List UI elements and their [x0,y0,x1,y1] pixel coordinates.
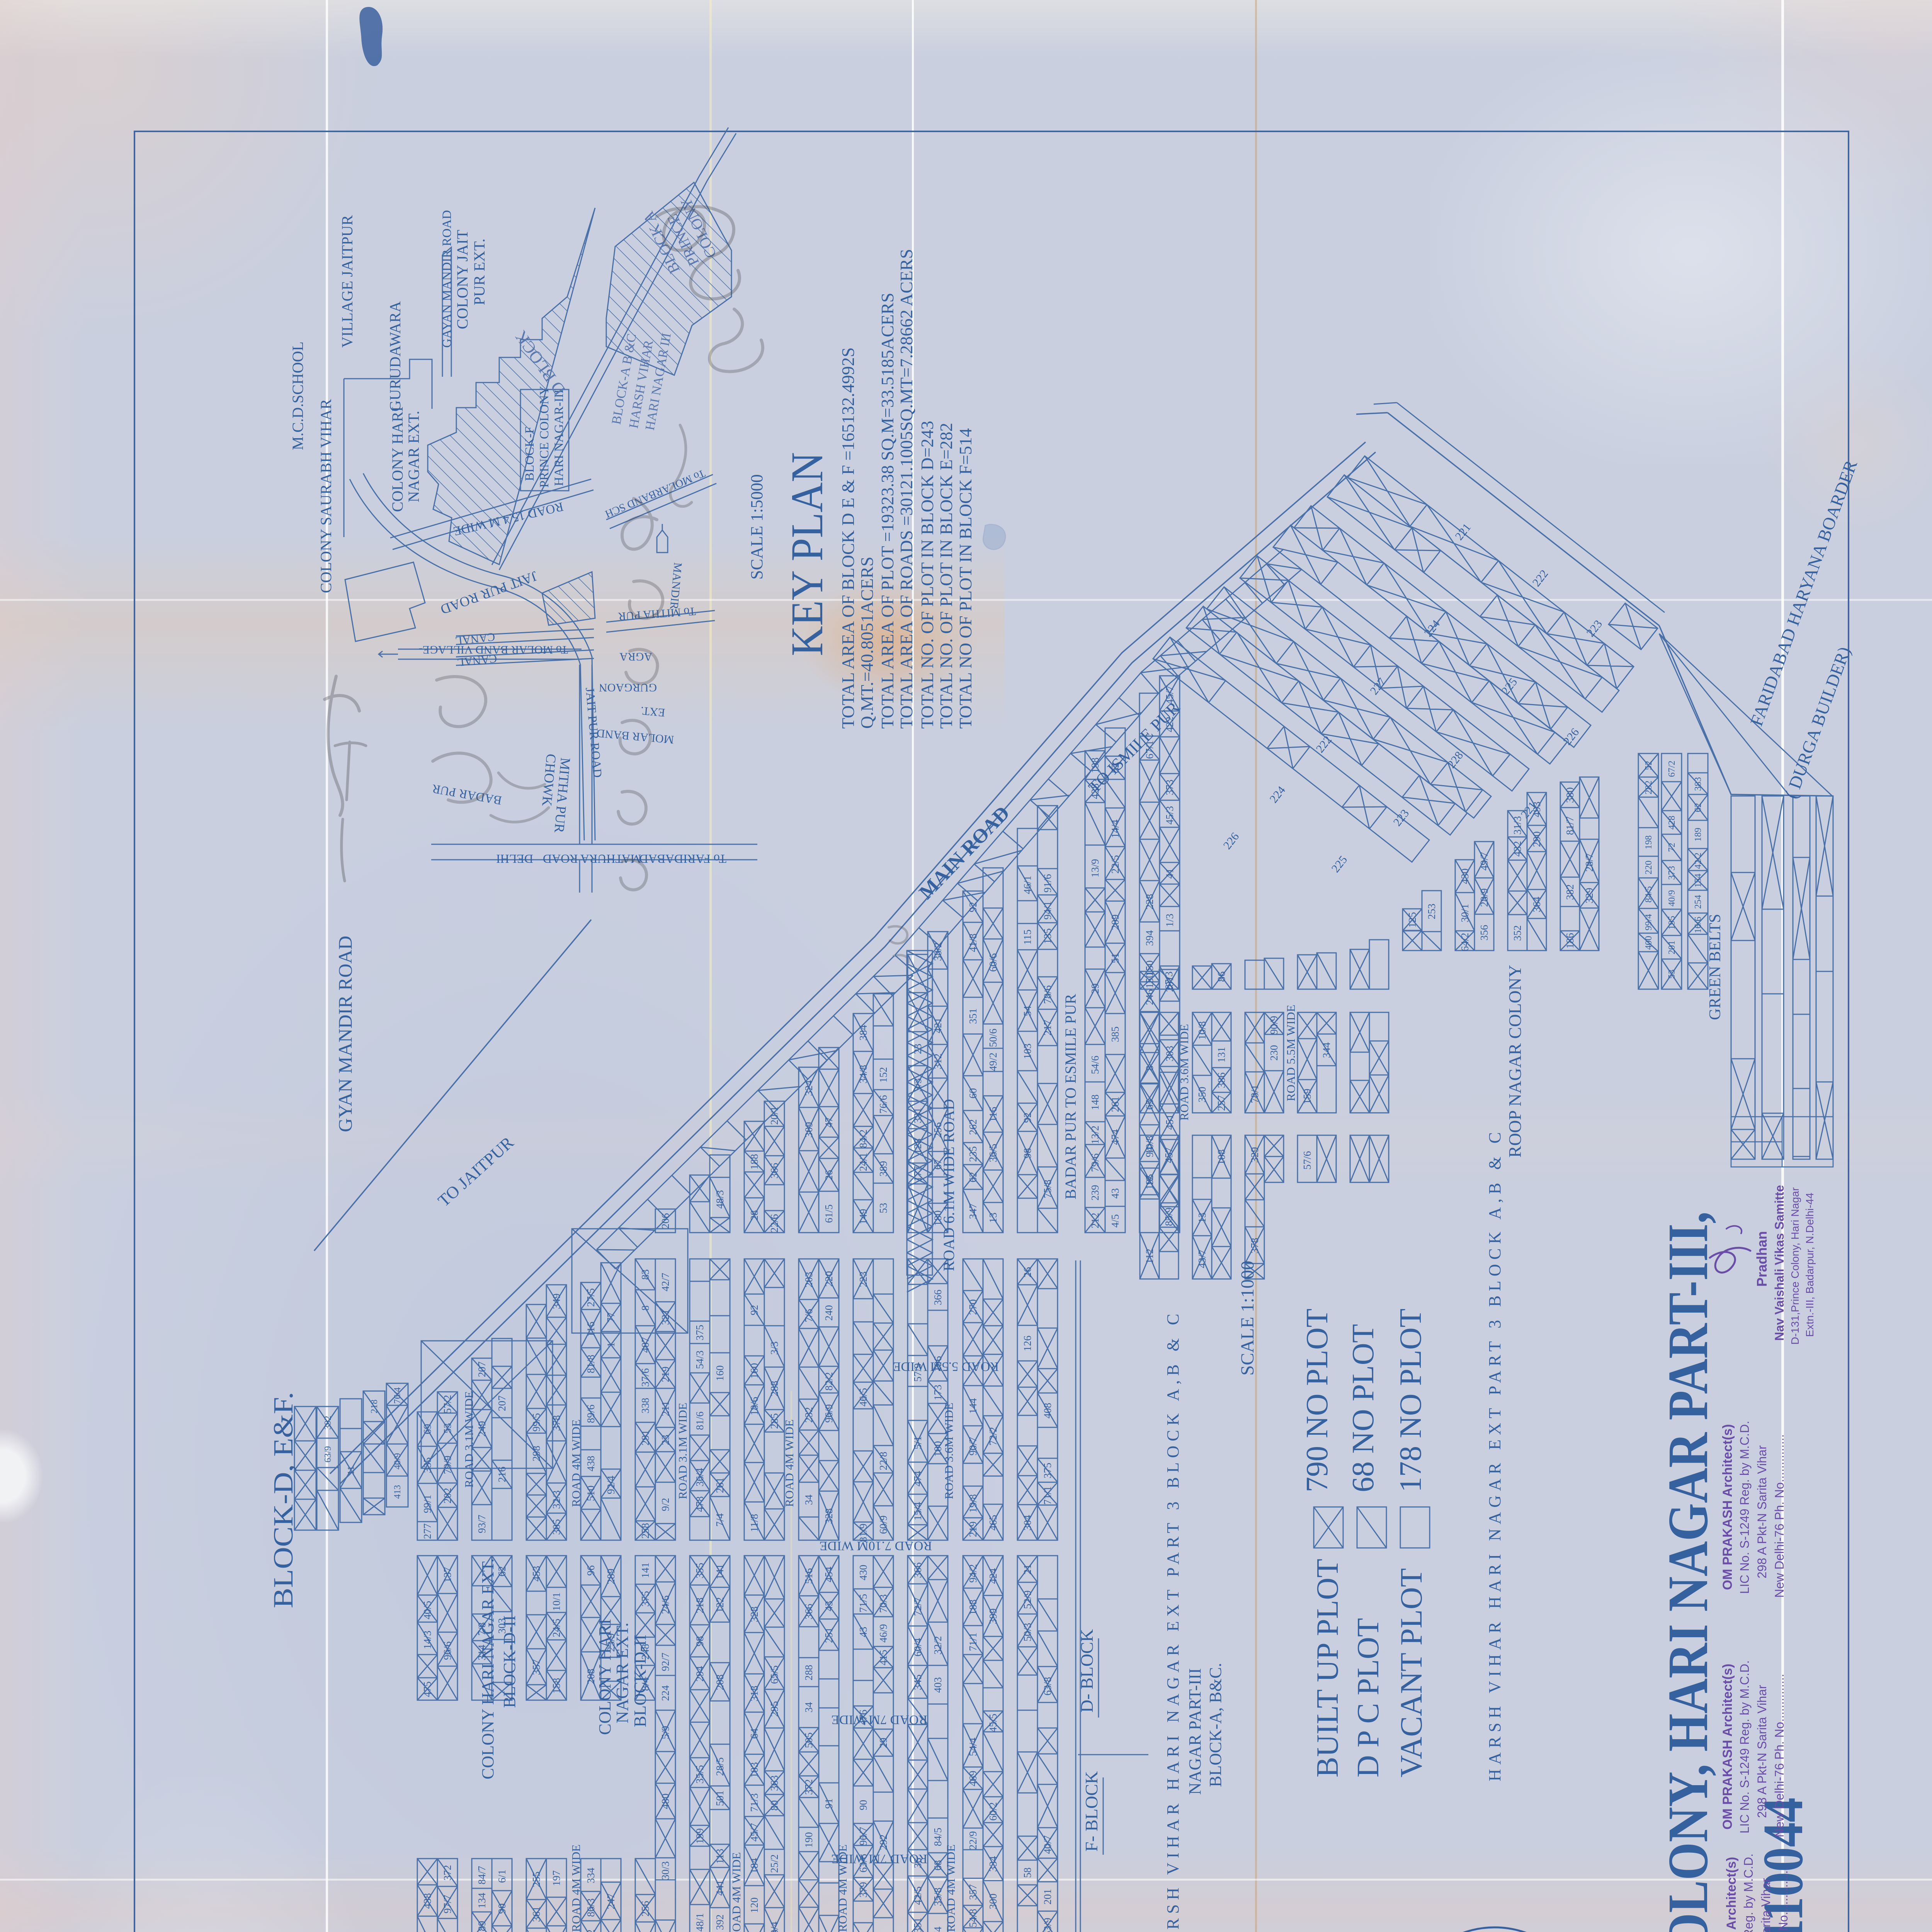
svg-text:288: 288 [769,1381,780,1397]
svg-text:43: 43 [1109,1188,1121,1199]
svg-text:13: 13 [987,1213,999,1223]
svg-text:298 A Pkt-N Sarita Vihar: 298 A Pkt-N Sarita Vihar [1759,1878,1773,1932]
svg-text:36/4: 36/4 [694,1468,706,1486]
svg-text:304: 304 [1022,1515,1033,1531]
svg-text:ROAD 5.5M WIDE: ROAD 5.5M WIDE [1284,1005,1298,1101]
svg-text:113: 113 [714,1849,726,1864]
svg-text:84/5: 84/5 [932,1828,944,1846]
svg-text:PRINCE COLONY: PRINCE COLONY [537,386,551,488]
svg-text:53: 53 [442,1423,453,1434]
svg-text:GREEN BELTS: GREEN BELTS [1706,914,1724,1020]
svg-text:99/4: 99/4 [1644,914,1654,930]
svg-text:OM PRAKASH Architect(s): OM PRAKASH Architect(s) [1720,1664,1735,1830]
svg-text:227: 227 [1368,676,1389,697]
svg-text:COLONY SAURABH VIHAR: COLONY SAURABH VIHAR [317,399,335,593]
svg-text:MAIN ROAD: MAIN ROAD [915,802,1014,903]
svg-text:19/8: 19/8 [967,1494,979,1513]
svg-text:To MOLAR BAND VILLAGE-: To MOLAR BAND VILLAGE- [419,643,568,656]
svg-text:TO JAITPUR: TO JAITPUR [434,1133,517,1211]
svg-text:363: 363 [769,1776,780,1791]
svg-text:451: 451 [1164,1114,1175,1130]
svg-text:295: 295 [769,1701,780,1717]
svg-text:261: 261 [714,1478,726,1493]
svg-text:207: 207 [496,1396,508,1412]
svg-text:372: 372 [442,1865,453,1881]
svg-text:28/7: 28/7 [1583,853,1595,872]
svg-text:334: 334 [585,1867,597,1883]
svg-text:14/3: 14/3 [422,1631,433,1649]
svg-text:135: 135 [1042,929,1053,944]
svg-text:43: 43 [823,1601,835,1611]
svg-text:255: 255 [531,1872,542,1888]
svg-text:430: 430 [1459,869,1471,884]
svg-text:224: 224 [1422,618,1443,639]
svg-text:220: 220 [823,1271,835,1287]
svg-text:23: 23 [912,1044,923,1054]
svg-text:256: 256 [639,1901,651,1917]
svg-text:96: 96 [585,1565,597,1576]
svg-text:160: 160 [748,1363,760,1379]
svg-text:5/1: 5/1 [912,1436,923,1449]
svg-text:115: 115 [1022,930,1033,945]
svg-text:BLOCK-D-II: BLOCK-D-II [631,1634,650,1727]
svg-text:394: 394 [1144,930,1155,946]
svg-text:188: 188 [748,1154,760,1170]
svg-text:1/3: 1/3 [1164,913,1175,927]
svg-text:291: 291 [639,1430,651,1446]
svg-text:81/8: 81/8 [585,1355,597,1373]
svg-text:41: 41 [1164,868,1175,879]
svg-text:392: 392 [714,1915,726,1930]
svg-text:516: 516 [803,1568,815,1584]
svg-text:154: 154 [1693,874,1703,888]
svg-text:226: 226 [1561,726,1582,748]
svg-text:OM PRAKASH Architect(s): OM PRAKASH Architect(s) [1724,1857,1739,1932]
svg-text:SCALE 1:1000: SCALE 1:1000 [1237,1261,1258,1376]
svg-text:28/9: 28/9 [1478,888,1490,907]
svg-text:352: 352 [1512,925,1523,941]
svg-text:7/4: 7/4 [714,1513,726,1527]
svg-text:24/6: 24/6 [660,1595,671,1614]
svg-text:474: 474 [1109,1129,1121,1145]
svg-text:290: 290 [1531,832,1543,847]
svg-text:383: 383 [1693,777,1703,791]
svg-text:20/1: 20/1 [769,1106,780,1125]
svg-text:PUR EXT.: PUR EXT. [471,238,488,305]
svg-text:92: 92 [1022,1112,1033,1123]
svg-text:89: 89 [476,1921,488,1931]
svg-text:294: 294 [694,1666,706,1682]
svg-text:HARI NAGAR-III: HARI NAGAR-III [552,389,566,486]
svg-text:305: 305 [551,1519,562,1535]
svg-text:202: 202 [442,1488,453,1504]
svg-text:312: 312 [932,1054,944,1070]
svg-text:23: 23 [660,1435,671,1445]
svg-text:13/9: 13/9 [1089,859,1101,878]
svg-text:334: 334 [987,1856,999,1872]
svg-text:18/6: 18/6 [748,1397,760,1415]
svg-text:28/5: 28/5 [714,1757,726,1776]
svg-text:To FARIDABAD: To FARIDABAD [639,852,726,866]
svg-text:285: 285 [769,1413,780,1429]
svg-text:261: 261 [1109,1097,1121,1112]
svg-text:TOTAL NO. OF PLOT IN BLOCK D=2: TOTAL NO. OF PLOT IN BLOCK D=243 [917,421,937,729]
svg-text:36/5: 36/5 [987,1144,999,1162]
svg-text:21: 21 [1022,1564,1033,1575]
svg-text:103: 103 [1022,1044,1033,1060]
svg-text:11: 11 [346,1466,356,1475]
svg-text:375: 375 [639,1591,651,1607]
svg-text:224: 224 [660,1685,671,1701]
svg-text:351: 351 [912,1918,923,1932]
svg-text:321: 321 [660,1310,671,1325]
svg-text:92/4: 92/4 [605,1475,617,1494]
svg-text:40/9: 40/9 [1667,890,1677,906]
svg-text:96/7: 96/7 [857,1827,869,1845]
svg-text:253: 253 [1426,904,1437,920]
svg-text:8: 8 [639,1306,651,1311]
svg-text:NAGAR EXT.: NAGAR EXT. [613,1622,632,1723]
svg-text:6/1: 6/1 [496,1869,508,1883]
svg-text:84/5: 84/5 [1644,886,1654,903]
svg-text:309: 309 [803,1122,815,1138]
svg-text:400: 400 [1644,936,1654,950]
svg-text:29: 29 [1089,983,1101,994]
svg-text:COLONY HARI: COLONY HARI [595,1619,614,1735]
svg-text:57/2: 57/2 [442,1395,453,1413]
svg-text:206: 206 [660,1213,671,1229]
svg-text:344: 344 [1321,1042,1332,1058]
svg-text:31/3: 31/3 [1512,816,1523,835]
svg-text:149: 149 [857,1209,869,1225]
svg-text:407: 407 [639,1337,651,1353]
svg-text:( DURGA BUILDER): ( DURGA BUILDER) [1781,644,1854,801]
svg-text:14/4: 14/4 [1109,819,1121,838]
svg-text:465: 465 [987,1515,999,1531]
svg-text:230: 230 [1268,1045,1280,1061]
svg-text:226: 226 [1221,830,1242,852]
svg-text:13: 13 [1196,1213,1208,1223]
svg-text:216: 216 [496,1467,508,1483]
svg-text:96/9: 96/9 [823,1404,835,1423]
svg-text:247: 247 [605,1894,617,1910]
svg-text:178 NO PLOT: 178 NO PLOT [1394,1308,1428,1492]
svg-text:37/6: 37/6 [639,1368,651,1387]
svg-text:62: 62 [967,1172,979,1182]
svg-text:375: 375 [1042,1463,1053,1479]
svg-text:50/6: 50/6 [987,1029,999,1047]
svg-text:177: 177 [912,1166,923,1182]
svg-text:98: 98 [1022,1148,1033,1158]
svg-text:257: 257 [1216,1095,1227,1111]
svg-text:JAIT PUR ROAD: JAIT PUR ROAD [439,568,539,617]
svg-text:SCALE 1:5000: SCALE 1:5000 [747,474,766,580]
svg-text:Q.MT.=40.8051ACERS: Q.MT.=40.8051ACERS [857,556,877,729]
svg-text:208: 208 [714,1675,726,1690]
svg-text:86/3: 86/3 [585,1898,597,1917]
svg-text:76/4: 76/4 [393,1387,403,1404]
svg-text:469: 469 [967,1771,979,1787]
svg-text:60/6: 60/6 [987,953,999,972]
svg-text:432: 432 [1512,841,1523,857]
svg-text:30/1: 30/1 [1459,904,1471,922]
svg-text:50/3: 50/3 [1022,1623,1033,1641]
svg-text:125: 125 [1406,912,1418,928]
svg-text:1: 1 [605,1342,617,1348]
svg-text:52/9: 52/9 [1022,1590,1033,1609]
svg-text:46/5: 46/5 [857,1388,869,1406]
svg-text:32/3: 32/3 [551,1490,562,1509]
svg-text:199: 199 [694,1828,706,1844]
svg-text:188: 188 [967,1600,979,1616]
svg-text:91: 91 [823,1798,835,1809]
svg-text:ROAD 3.1M WIDE: ROAD 3.1M WIDE [676,1403,689,1499]
svg-text:7/6: 7/6 [803,1309,815,1322]
svg-text:TOTAL AREA OF ROADS =30121.100: TOTAL AREA OF ROADS =30121.1005SQ.MT=7.2… [896,249,916,729]
svg-text:OM PRAKASH Architect(s): OM PRAKASH Architect(s) [1720,1424,1735,1590]
svg-text:329: 329 [1583,888,1595,904]
svg-text:71/3: 71/3 [748,1793,760,1812]
svg-text:F- BLOCK: F- BLOCK [1082,1771,1101,1852]
svg-text:270: 270 [967,1299,979,1315]
svg-text:81/7: 81/7 [1564,816,1576,835]
svg-text:54: 54 [1022,1006,1033,1017]
svg-text:219: 219 [660,1367,671,1383]
svg-text:298 A Pkt-N Sarita Vihar: 298 A Pkt-N Sarita Vihar [1755,1685,1769,1818]
svg-text:80: 80 [769,1800,780,1811]
svg-text:152: 152 [878,1067,889,1083]
svg-text:ROAD 4M WIDE: ROAD 4M WIDE [782,1419,796,1507]
svg-text:438: 438 [422,1893,433,1909]
svg-text:79/9: 79/9 [442,1456,453,1474]
svg-text:TOTAL NO OF PLOT IN BLOCK F=51: TOTAL NO OF PLOT IN BLOCK F=514 [956,428,975,729]
svg-text:96/6: 96/6 [442,1641,453,1660]
svg-text:64: 64 [748,1728,760,1739]
svg-text:438: 438 [585,1456,597,1472]
svg-text:160: 160 [714,1366,726,1381]
svg-text:30/3: 30/3 [660,1861,671,1880]
svg-text:69: 69 [422,1424,433,1434]
svg-text:223: 223 [1391,807,1412,829]
svg-text:34: 34 [803,1702,815,1713]
svg-text:372: 372 [803,1779,815,1795]
svg-text:239: 239 [1089,1185,1101,1201]
svg-text:116: 116 [987,1107,999,1122]
svg-text:246: 246 [1144,990,1155,1005]
svg-text:5/9: 5/9 [660,1726,671,1739]
svg-text:22/6: 22/6 [769,1214,780,1233]
svg-text:220: 220 [1644,861,1654,874]
svg-text:386: 386 [1216,1073,1227,1088]
svg-text:93/7: 93/7 [476,1515,488,1533]
svg-text:67/2: 67/2 [1667,760,1677,777]
svg-text:137: 137 [442,1567,453,1583]
svg-text:BLOCK-D-II: BLOCK-D-II [500,1615,519,1708]
svg-text:38/2: 38/2 [932,942,944,961]
svg-text:ROAD 6.1M WIDE ROAD: ROAD 6.1M WIDE ROAD [940,1099,957,1271]
svg-text:43: 43 [857,1627,869,1637]
svg-text:63/8: 63/8 [1042,1677,1053,1696]
svg-text:ROAD 3.6M WIDE: ROAD 3.6M WIDE [942,1403,956,1499]
svg-text:378: 378 [1249,1238,1260,1254]
svg-text:86: 86 [1216,971,1227,982]
svg-text:223: 223 [1584,618,1605,639]
svg-text:413: 413 [393,1485,403,1499]
svg-text:22/5: 22/5 [1109,855,1121,874]
svg-text:10/8: 10/8 [1144,1136,1155,1154]
svg-text:New Delhi-76 Ph. No...........: New Delhi-76 Ph. No.............. [1776,1867,1790,1932]
svg-text:72/2: 72/2 [987,1427,999,1446]
svg-text:40/7: 40/7 [1042,1835,1053,1854]
svg-text:212: 212 [1089,1213,1101,1229]
svg-text:158: 158 [551,1678,562,1694]
svg-text:NAGAR EXT.: NAGAR EXT. [405,411,422,502]
svg-text:235: 235 [967,1146,979,1162]
svg-text:366: 366 [769,1163,780,1179]
svg-text:GAYAN MANDIR ROAD: GAYAN MANDIR ROAD [440,210,454,348]
svg-text:389: 389 [878,1161,889,1177]
svg-text:COLONY JAIT: COLONY JAIT [454,230,471,329]
svg-text:91/6: 91/6 [1042,874,1053,893]
svg-text:228: 228 [1144,894,1155,910]
svg-text:10/1: 10/1 [551,1592,562,1611]
svg-text:385: 385 [1109,1027,1121,1043]
svg-text:335: 335 [422,1458,433,1473]
svg-text:379: 379 [857,1882,869,1898]
svg-text:141: 141 [714,1564,726,1580]
svg-text:262: 262 [967,1119,979,1135]
svg-text:29: 29 [878,1738,889,1748]
svg-text:42/7: 42/7 [660,1273,671,1291]
svg-text:72/7: 72/7 [912,1597,923,1616]
svg-text:M.C.D.SCHOOL: M.C.D.SCHOOL [289,342,306,450]
svg-text:8: 8 [1144,1066,1155,1071]
svg-text:99/5: 99/5 [531,1413,542,1432]
svg-text:222: 222 [1530,568,1551,589]
svg-text:232: 232 [803,1407,815,1423]
svg-text:COLONY HARI NAGAR EXT.: COLONY HARI NAGAR EXT. [478,1558,497,1779]
svg-text:BADAR PUR TO ESMILE PUR: BADAR PUR TO ESMILE PUR [1062,994,1079,1199]
svg-text:108: 108 [1216,1150,1227,1165]
svg-text:82/2: 82/2 [823,1372,835,1391]
svg-text:34: 34 [803,1495,815,1505]
svg-text:94/2: 94/2 [967,1564,979,1583]
svg-text:76/6: 76/6 [878,1095,889,1114]
svg-text:428: 428 [1667,816,1677,830]
svg-text:201: 201 [1667,940,1677,954]
svg-text:Pradhan: Pradhan [1754,1231,1770,1287]
svg-text:49/7: 49/7 [1478,852,1490,871]
svg-text:FARIDABAD HARYANA BOARDER: FARIDABAD HARYANA BOARDER [1746,457,1861,728]
svg-text:68: 68 [932,1860,944,1871]
svg-text:62: 62 [1693,803,1703,812]
svg-text:81/6: 81/6 [694,1412,706,1430]
svg-text:380: 380 [1564,787,1576,803]
svg-text:350: 350 [1196,1087,1208,1103]
svg-text:53: 53 [878,1203,889,1213]
svg-text:LIC No. S-1249 Reg. by M.C.D.: LIC No. S-1249 Reg. by M.C.D. [1738,1421,1752,1594]
svg-text:9/2: 9/2 [660,1498,671,1511]
svg-text:338: 338 [639,1398,651,1414]
svg-text:351: 351 [967,1009,979,1024]
svg-text:112: 112 [1144,1249,1155,1264]
svg-text:184: 184 [748,1858,760,1874]
svg-text:ROAD 7M WIDE: ROAD 7M WIDE [831,1713,927,1727]
svg-text:D P C PLOT: D P C PLOT [1351,1618,1385,1777]
svg-text:159: 159 [1301,1089,1313,1105]
svg-text:32/2: 32/2 [932,1636,944,1655]
svg-text:331: 331 [912,1108,923,1124]
svg-text:208: 208 [585,1669,597,1685]
svg-text:357: 357 [531,1660,542,1675]
svg-text:LIC No. S-1249 Reg. by M.C.D.: LIC No. S-1249 Reg. by M.C.D. [1738,1660,1752,1833]
svg-text:4/5: 4/5 [1109,1214,1121,1228]
svg-text:90: 90 [496,1903,508,1914]
svg-text:403: 403 [932,1677,944,1693]
svg-text:35/5: 35/5 [694,1765,706,1784]
svg-text:211: 211 [660,1401,671,1417]
svg-text:43/4: 43/4 [769,1921,780,1932]
svg-text:75/8: 75/8 [1042,1180,1053,1198]
svg-text:BLOCK-D, E&F.: BLOCK-D, E&F. [268,1392,299,1608]
svg-text:BLOCK-F: BLOCK-F [523,427,537,481]
svg-text:225: 225 [1499,676,1520,697]
svg-text:ROAD 3.1M WIDE: ROAD 3.1M WIDE [462,1391,476,1488]
svg-text:92: 92 [967,902,979,912]
svg-text:ROAD 3.6M WIDE: ROAD 3.6M WIDE [1177,1024,1191,1121]
svg-text:382: 382 [1564,884,1576,900]
svg-text:13/2: 13/2 [1089,1126,1101,1144]
svg-text:292: 292 [878,1835,889,1850]
svg-text:454: 454 [823,1566,835,1582]
svg-text:60/4: 60/4 [912,1638,923,1656]
svg-text:366: 366 [803,1604,815,1620]
svg-text:345: 345 [912,1675,923,1690]
svg-text:150: 150 [1144,961,1155,976]
svg-text:99/1: 99/1 [422,1495,433,1513]
svg-text:291: 291 [1164,976,1175,992]
svg-text:186: 186 [1564,933,1576,949]
svg-text:89/6: 89/6 [585,1405,597,1423]
svg-text:415: 415 [878,1650,889,1666]
svg-text:408: 408 [1042,1403,1053,1419]
svg-text:KEY PLAN: KEY PLAN [782,452,832,656]
svg-text:90/7: 90/7 [967,1437,979,1456]
svg-text:148: 148 [1089,1095,1101,1111]
svg-text:329: 329 [1249,1147,1260,1163]
svg-text:134: 134 [476,1893,488,1908]
svg-text:277: 277 [422,1524,433,1539]
svg-text:126: 126 [1022,1336,1033,1352]
svg-text:790 NO PLOT: 790 NO PLOT [1300,1308,1334,1492]
svg-text:54/4: 54/4 [967,1737,979,1756]
svg-text:424: 424 [987,1568,999,1584]
svg-text:225: 225 [1329,854,1350,875]
svg-text:318: 318 [748,1686,760,1702]
svg-text:3/3: 3/3 [912,1078,923,1092]
svg-text:54/3: 54/3 [694,1350,706,1369]
svg-text:71/1: 71/1 [967,1633,979,1651]
svg-text:430: 430 [857,1565,869,1581]
svg-text:D-131,Prince Colony, Hari Naga: D-131,Prince Colony, Hari Nagar [1789,1187,1801,1345]
svg-text:26: 26 [823,1170,835,1180]
svg-text:324: 324 [803,1080,815,1096]
svg-text:223: 223 [857,1272,869,1287]
svg-text:NAGAR PART-III: NAGAR PART-III [1185,1668,1204,1795]
svg-text:42/5: 42/5 [912,1886,923,1905]
svg-text:46/9: 46/9 [878,1624,889,1643]
svg-text:54/6: 54/6 [1089,1056,1101,1074]
